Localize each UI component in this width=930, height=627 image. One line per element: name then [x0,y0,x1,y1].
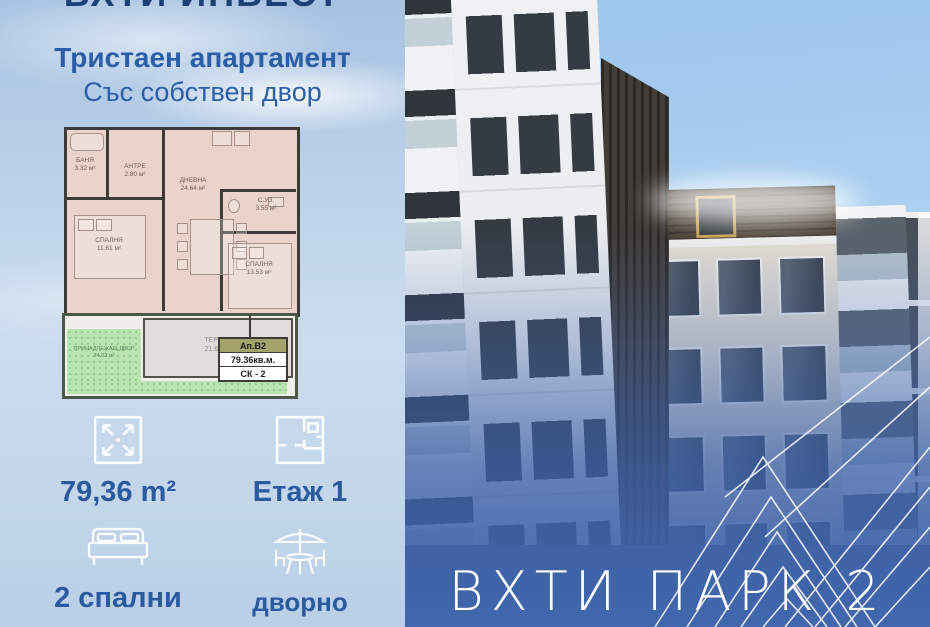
tag-section: СК - 2 [220,367,286,380]
floorplan-icon [274,414,326,466]
room-label-bedroom-1: СПАЛНЯ 11.61 м² [76,237,142,254]
kitchen-sink [234,131,250,146]
brand-text-clipped: ВХТИ ИНВЕСТ [0,0,405,15]
room-label-antre: АНТРЕ 2.80 м² [108,163,162,180]
kitchen-unit [212,131,232,146]
feature-area-label: 79,36 m² [18,476,218,509]
patio-icon [268,524,332,578]
area-icon [92,414,144,466]
room-label-bath: БАНЯ 3.32 м² [64,157,106,174]
room-label-bedroom-2: СПАЛНЯ 13.53 м² [226,261,292,278]
building-render: ВХТИ ПАРК 2 [405,0,930,627]
apartment-tag: Ап.В2 79.36кв.м. СК - 2 [218,337,288,382]
pillow [249,247,264,259]
headline-apartment-type: Тристаен апартамент [0,42,405,74]
tag-leader-line [249,315,251,339]
chair [177,223,188,234]
pillow [232,247,247,259]
headline-own-yard: Със собствен двор [0,77,405,108]
floor-plan: БАНЯ 3.32 м² АНТРЕ 2.80 м² ДНЕВНА 24.64 … [62,125,302,402]
grass-strip [67,381,287,394]
feature-bedrooms: 2 спални [18,524,218,615]
chair [236,223,247,234]
flyer-page: ВХТИ ИНВЕСТ Тристаен апартамент Със собс… [0,0,930,627]
room-label-wc: С.УЗ. 3.55 м² [238,197,294,214]
feature-floor-label: Етаж 1 [200,476,400,509]
chair [177,259,188,270]
yard-label: ПРИНАДЛЕЖАЩ ДВОР 34.03 м² [67,346,141,361]
tag-apartment-number: Ап.В2 [220,339,286,353]
chair [177,241,188,252]
wall [64,197,165,200]
feature-area: 79,36 m² [18,414,218,509]
pillow [96,219,112,231]
project-title: ВХТИ ПАРК 2 [405,560,930,623]
pillow [78,219,94,231]
feature-yard-label: дворно място [225,588,375,627]
tag-area: 79.36кв.м. [220,353,286,367]
bed-icon [85,524,151,572]
feature-yard: дворно място [200,524,400,627]
feature-bedrooms-label: 2 спални [18,582,218,615]
bathtub [70,133,104,151]
wall [162,127,165,311]
feature-floor: Етаж 1 [200,414,400,509]
room-label-living: ДНЕВНА 24.64 м² [166,177,220,194]
wall [220,189,296,192]
